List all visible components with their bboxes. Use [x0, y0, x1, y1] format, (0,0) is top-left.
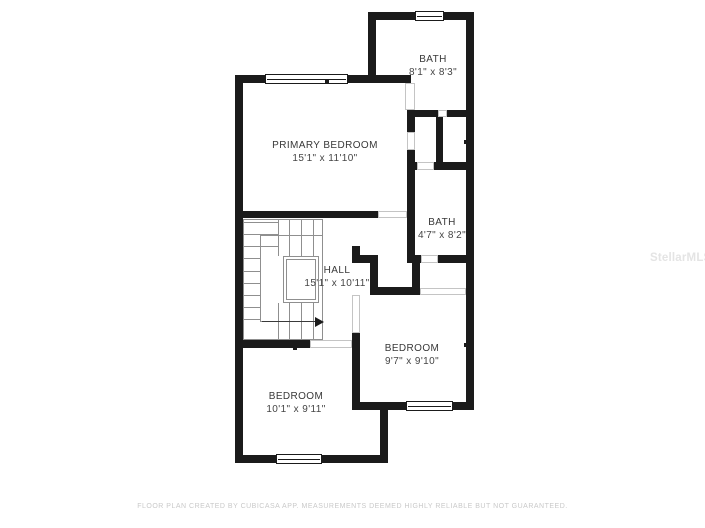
wall-exterior-left — [235, 75, 243, 463]
stair-tread — [313, 219, 314, 256]
wall-tick — [464, 140, 468, 144]
window-sash-line — [408, 406, 451, 407]
room-label-bath1: BATH 8'1" x 8'3" — [409, 54, 457, 79]
window-sash-line — [278, 459, 320, 460]
window — [406, 401, 453, 411]
floor-plan: BATH 8'1" x 8'3" PRIMARY BEDROOM 15'1" x… — [0, 0, 705, 528]
stair-tread — [301, 219, 302, 256]
door-opening-closet-bottom — [417, 162, 434, 170]
wall-tick — [464, 343, 468, 347]
door-opening-primary-bath1 — [405, 83, 415, 110]
stair-tread — [243, 283, 260, 284]
room-label-bedroom1: BEDROOM 10'1" x 9'11" — [266, 391, 325, 416]
room-label-bath2: BATH 4'7" x 8'2" — [418, 217, 466, 242]
window — [265, 74, 348, 84]
room-name: BEDROOM — [266, 391, 325, 404]
wall-tick — [325, 79, 329, 83]
room-dims: 9'7" x 9'10" — [385, 356, 439, 369]
wall-interior-closet-divider — [436, 117, 443, 162]
wall-tick — [307, 212, 311, 216]
room-dims: 15'1" x 10'11" — [304, 278, 369, 291]
room-name: BATH — [409, 54, 457, 67]
door-opening-bath2 — [421, 255, 438, 263]
wall-interior-closet-bottom-a — [407, 162, 417, 170]
stair-tread — [243, 319, 260, 320]
window-sash-line — [267, 79, 346, 80]
door-opening-closet-bath1 — [438, 110, 447, 117]
wall-interior-closet-top-b — [447, 110, 474, 117]
room-name: PRIMARY BEDROOM — [272, 140, 378, 153]
door-opening-bedroom1 — [310, 340, 352, 348]
room-label-primary-bedroom: PRIMARY BEDROOM 15'1" x 11'10" — [272, 140, 378, 165]
wall-exterior-right — [466, 12, 474, 410]
disclaimer-text: FLOOR PLAN CREATED BY CUBICASA APP. MEAS… — [0, 503, 705, 510]
room-label-bedroom2: BEDROOM 9'7" x 9'10" — [385, 343, 439, 368]
window — [415, 11, 444, 21]
stair-tread — [243, 295, 260, 296]
stair-tread — [243, 234, 278, 235]
wall-interior-bedroom1-top — [235, 340, 310, 348]
room-dims: 8'1" x 8'3" — [409, 67, 457, 80]
room-dims: 15'1" x 11'10" — [272, 153, 378, 166]
stair-direction-arrow-line — [262, 321, 316, 322]
wall-interior-closet-bottom-b — [434, 162, 474, 170]
room-label-hall: HALL 15'1" x 10'11" — [304, 265, 369, 290]
stair-tread — [243, 258, 260, 259]
room-dims: 10'1" x 9'11" — [266, 404, 325, 417]
wall-tick — [239, 231, 243, 235]
stair-tread — [243, 222, 278, 223]
room-dims: 4'7" x 8'2" — [418, 230, 466, 243]
wall-exterior-bath-left — [368, 12, 376, 83]
wall-exterior-jog — [380, 402, 388, 463]
room-name: HALL — [304, 265, 369, 278]
door-opening-primary-closet — [407, 132, 415, 150]
wall-tick — [293, 346, 297, 350]
window-sash-line — [417, 16, 442, 17]
door-opening-primary — [378, 211, 407, 218]
wall-interior-bath2-bottom-b — [438, 255, 474, 263]
stair-tread — [243, 246, 278, 247]
door-opening-bedroom2 — [352, 295, 360, 333]
wall-interior-bedroom2-top-connector — [412, 255, 420, 295]
wall-tick — [239, 331, 243, 335]
stair-direction-arrow-head — [315, 317, 324, 327]
room-name: BATH — [418, 217, 466, 230]
wall-interior-bedroom2-left — [352, 333, 360, 410]
wall-interior-closet-top-a — [407, 110, 438, 117]
stair-tread — [243, 271, 260, 272]
stair-tread — [289, 219, 290, 256]
room-name: BEDROOM — [385, 343, 439, 356]
window — [276, 454, 322, 464]
watermark: StellarMLS — [650, 252, 705, 264]
door-opening-bedroom2-closet — [420, 288, 466, 295]
stair-tread — [243, 307, 260, 308]
stair-tread — [278, 219, 279, 256]
